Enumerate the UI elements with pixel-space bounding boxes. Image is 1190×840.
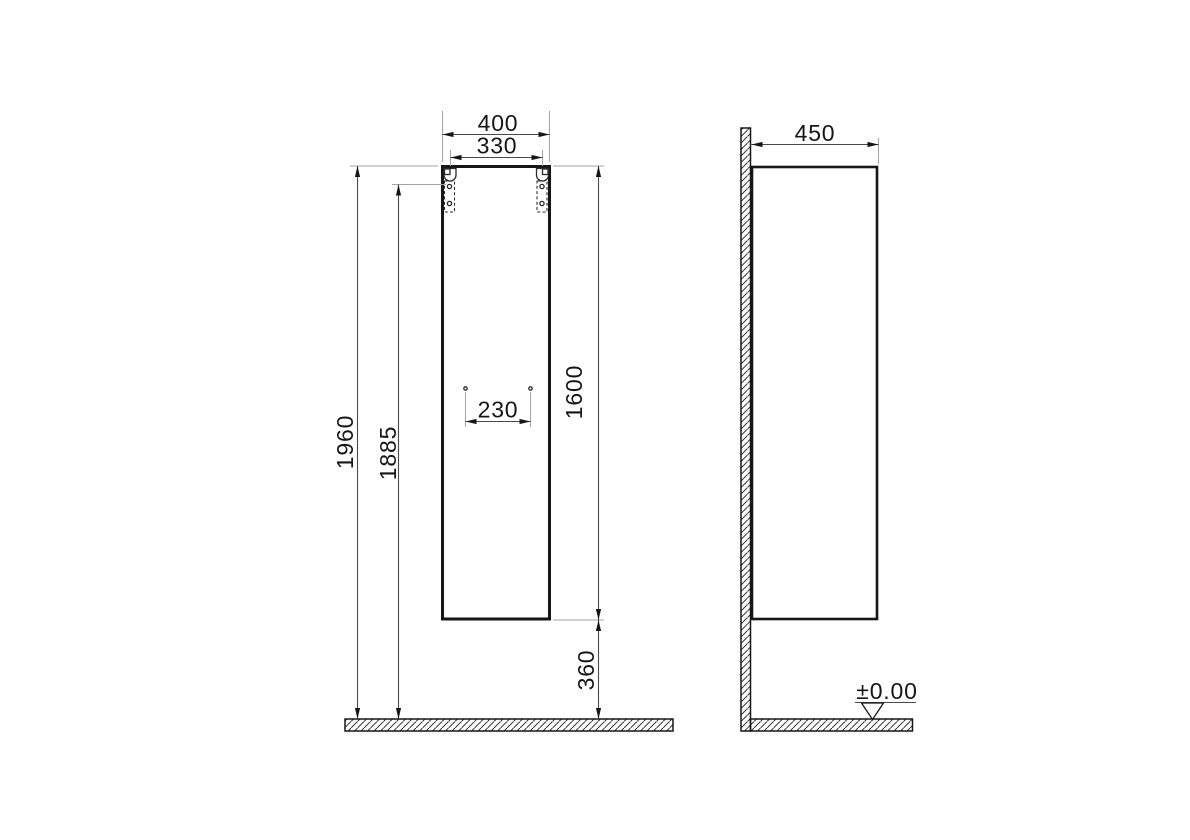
dim-label-hole-spacing: 230 bbox=[478, 397, 519, 423]
arrowhead-right bbox=[532, 155, 543, 160]
bracket-screw-hole-bottom bbox=[540, 201, 544, 205]
floor-hatch-front bbox=[345, 719, 673, 731]
arrowhead-bottom bbox=[596, 609, 601, 620]
dim-floor-clearance: 360 bbox=[573, 620, 601, 719]
arrowhead-left bbox=[443, 132, 454, 137]
dim-bracket-height: 1885 bbox=[375, 185, 446, 720]
arrowhead-left bbox=[451, 155, 462, 160]
dim-label-overall-height: 1960 bbox=[332, 415, 358, 469]
mounting-hole-dot-right bbox=[529, 387, 532, 390]
front-view: 400 330 230 1960 bbox=[332, 110, 673, 731]
dim-label-depth: 450 bbox=[795, 120, 836, 146]
side-view: 450 ±0.00 bbox=[741, 120, 918, 731]
arrowhead-bottom bbox=[596, 708, 601, 719]
drawing-page: 400 330 230 1960 bbox=[0, 0, 1190, 840]
level-triangle-icon bbox=[862, 703, 884, 720]
level-label: ±0.00 bbox=[856, 678, 917, 704]
cabinet-front-outline bbox=[443, 167, 550, 620]
floor-hatch-side bbox=[751, 719, 913, 731]
arrowhead-top bbox=[596, 166, 601, 177]
arrowhead-top bbox=[355, 166, 360, 177]
dim-label-cabinet-height: 1600 bbox=[561, 365, 587, 419]
cabinet-side-outline bbox=[752, 167, 877, 619]
technical-drawing-canvas: 400 330 230 1960 bbox=[0, 0, 1190, 840]
dim-label-bracket-height: 1885 bbox=[375, 426, 401, 480]
arrowhead-right bbox=[539, 132, 550, 137]
wall-hatch bbox=[741, 128, 751, 731]
arrowhead-top bbox=[596, 620, 601, 631]
bracket-screw-hole-top bbox=[447, 184, 451, 188]
dim-depth: 450 bbox=[752, 120, 879, 164]
floor-level-marker: ±0.00 bbox=[855, 678, 918, 720]
dim-label-floor-clearance: 360 bbox=[573, 650, 599, 691]
dim-cabinet-height: 1600 bbox=[553, 166, 604, 620]
mounting-hole-dot-left bbox=[464, 387, 467, 390]
arrowhead-right bbox=[868, 142, 879, 147]
bracket-screw-hole-top bbox=[540, 184, 544, 188]
dim-bracket-spacing: 330 bbox=[451, 133, 543, 167]
arrowhead-top bbox=[396, 185, 401, 196]
arrowhead-bottom bbox=[396, 708, 401, 719]
arrowhead-bottom bbox=[355, 708, 360, 719]
bracket-hook-notch bbox=[445, 169, 451, 175]
bracket-screw-hole-bottom bbox=[447, 201, 451, 205]
dim-label-bracket-spacing: 330 bbox=[477, 133, 518, 159]
bracket-hook-notch bbox=[543, 169, 549, 175]
arrowhead-left bbox=[752, 142, 763, 147]
